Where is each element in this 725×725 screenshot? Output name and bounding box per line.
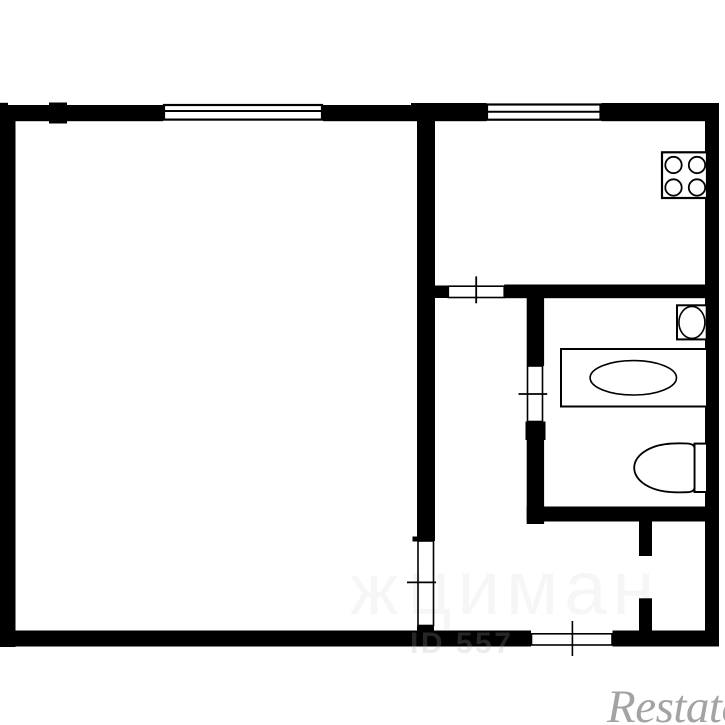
svg-text:ж: ж — [350, 550, 398, 630]
svg-text:Restate: Restate — [606, 681, 725, 725]
svg-text:циман: циман — [408, 546, 660, 631]
